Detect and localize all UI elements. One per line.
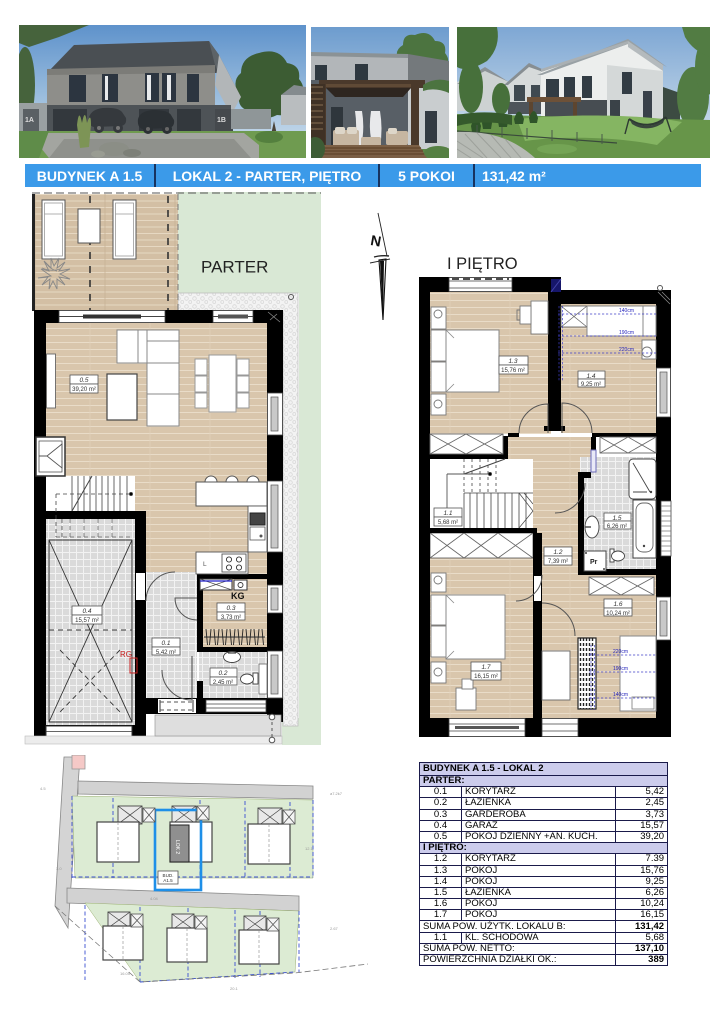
svg-text:0.3: 0.3 <box>226 605 235 612</box>
svg-text:0.5: 0.5 <box>79 377 88 384</box>
svg-text:1.3: 1.3 <box>508 358 517 365</box>
svg-text:140cm: 140cm <box>619 308 634 314</box>
svg-text:15,57 m²: 15,57 m² <box>75 618 99 624</box>
svg-text:4.5: 4.5 <box>40 786 46 791</box>
svg-text:I PIĘTRO: I PIĘTRO <box>447 255 518 273</box>
svg-text:220cm: 220cm <box>613 649 628 655</box>
svg-text:1.1: 1.1 <box>443 510 452 517</box>
svg-text:6,26 m²: 6,26 m² <box>607 524 627 530</box>
svg-text:LOK 2: LOK 2 <box>174 840 180 854</box>
svg-text:220cm: 220cm <box>619 347 634 353</box>
svg-text:39,20 m²: 39,20 m² <box>72 387 96 393</box>
svg-text:190cm: 190cm <box>619 330 634 336</box>
svg-text:190cm: 190cm <box>613 666 628 672</box>
svg-text:7,39 m²: 7,39 m² <box>548 559 568 565</box>
svg-text:Pr: Pr <box>590 559 598 566</box>
svg-text:1A: 1A <box>25 117 34 124</box>
svg-text:N: N <box>369 233 382 251</box>
svg-text:0.1: 0.1 <box>161 640 170 647</box>
svg-text:16,15 m²: 16,15 m² <box>474 674 498 680</box>
svg-text:3,73 m²: 3,73 m² <box>221 615 241 621</box>
svg-text:A1.5: A1.5 <box>163 878 173 883</box>
svg-text:1.7: 1.7 <box>481 664 490 671</box>
svg-text:L: L <box>203 561 207 568</box>
svg-text:PARTER: PARTER <box>201 258 268 277</box>
svg-text:2,45 m²: 2,45 m² <box>213 680 233 686</box>
svg-text:1.6: 1.6 <box>613 601 622 608</box>
svg-text:140cm: 140cm <box>613 692 628 698</box>
svg-text:5,68 m²: 5,68 m² <box>438 520 458 526</box>
svg-text:2.67: 2.67 <box>330 926 339 931</box>
svg-text:a7.2k7: a7.2k7 <box>330 791 343 796</box>
svg-text:3.0: 3.0 <box>56 866 62 871</box>
svg-text:15,76 m²: 15,76 m² <box>501 368 525 374</box>
svg-text:4.04: 4.04 <box>150 896 159 901</box>
svg-text:16.05: 16.05 <box>120 971 131 976</box>
svg-text:10,24 m²: 10,24 m² <box>606 611 630 617</box>
svg-text:20.1: 20.1 <box>230 986 239 991</box>
svg-text:KG: KG <box>231 591 245 601</box>
svg-text:1B: 1B <box>217 117 226 124</box>
svg-text:0.4: 0.4 <box>82 608 91 615</box>
svg-text:12.1: 12.1 <box>305 846 314 851</box>
svg-text:1.2: 1.2 <box>553 549 562 556</box>
svg-text:5,42 m²: 5,42 m² <box>156 650 176 656</box>
svg-text:9,25 m²: 9,25 m² <box>581 382 601 388</box>
svg-text:0.2: 0.2 <box>218 670 227 677</box>
